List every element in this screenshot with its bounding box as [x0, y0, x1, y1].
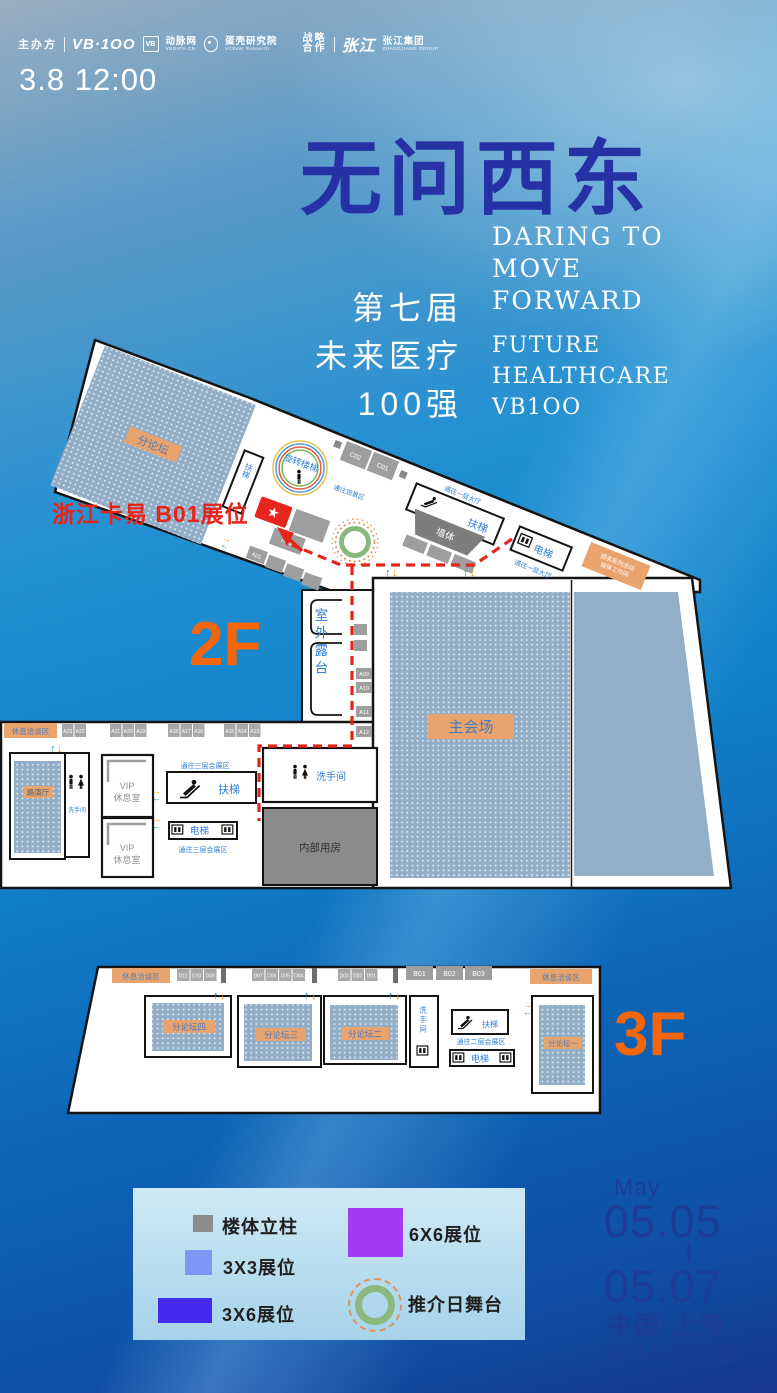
sponsor-bar: 主办方 VB·1OO VB 动脉网 VBDATA.CN 蛋壳研究院 VCBeat…	[18, 33, 438, 55]
legend-pillar-swatch	[193, 1215, 213, 1232]
booth-a13-label: A13	[250, 729, 259, 735]
floor3-elevator: 电梯	[450, 1050, 514, 1066]
up-down-arrows	[304, 990, 317, 1002]
booth-d05-label: D05	[281, 974, 290, 980]
floor3-restroom: 洗手间	[410, 996, 438, 1067]
pillar	[221, 968, 226, 983]
booth-a22-label: A22	[76, 729, 85, 735]
booth-a11-label: A11	[359, 710, 368, 716]
booth-a21-label: A21	[111, 729, 120, 735]
booth-d11-label: D11	[179, 974, 188, 980]
zhangjiang-sub: ZHANGJIANG GROUP	[383, 47, 439, 52]
rest-area-right-label: 休息洽谈区	[542, 972, 580, 982]
vcbeat-logo-icon: VB	[143, 36, 159, 52]
floor2-restroom-center: 洗手间	[263, 748, 377, 802]
forum-room-1: 分论坛一	[523, 996, 593, 1093]
subtitle-en-line3: VB1OO	[492, 392, 670, 423]
floor2-big-label: 2F	[189, 614, 261, 676]
floor3-plan: 休息洽谈区 休息洽谈区 D11 D10 D09 D07 D06 D05 D04 …	[68, 966, 600, 1113]
legend-stage-ring-icon	[355, 1285, 395, 1325]
main-title-cn: 无问西东	[300, 138, 720, 220]
legend-6x6-swatch	[348, 1208, 403, 1257]
floor2-restroom-left: 洗手间	[65, 753, 89, 857]
vip-lounge-1: VIP 休息室	[102, 755, 153, 817]
screenshot-timestamp: 3.8 12:00	[19, 62, 157, 98]
floor3-big-label: 3F	[614, 1004, 686, 1066]
booth-b03-label: B03	[472, 971, 485, 978]
pillar	[393, 968, 398, 983]
floor3-escalator: 扶梯 通往二层会展区	[452, 1010, 508, 1046]
legend-6x6-label: 6X6展位	[409, 1221, 482, 1247]
vcbeat-sub: VBDATA.CN	[166, 47, 198, 52]
pillar	[354, 624, 367, 635]
vip1-line2: 休息室	[113, 792, 140, 803]
booth-a17-label: A17	[182, 729, 191, 735]
up-down-arrows	[463, 567, 476, 579]
booth-a19-label: A19	[136, 729, 145, 735]
title-en-line2: MOVE	[492, 253, 664, 285]
swap-arrows	[523, 1000, 532, 1017]
rest-area-left-label: 休息洽谈区	[122, 971, 160, 981]
subtitle-cn-line3: 100强	[296, 380, 463, 428]
booth-d09-label: D09	[206, 974, 215, 980]
divider	[64, 37, 65, 52]
to-f3-label: 通往三层会展区	[181, 761, 230, 770]
title-en-line3: FORWARD	[492, 285, 664, 317]
up-down-arrows	[213, 990, 226, 1002]
partner-label-2: 合作	[303, 44, 327, 55]
subtitle-cn: 第七届 未来医疗 100强	[296, 284, 463, 428]
restroom-label: 洗手间	[68, 806, 86, 814]
floor2-center-elevator: 电梯 通往三层会展区	[169, 822, 237, 854]
booth-a15-label: A15	[225, 729, 234, 735]
vb100-logo: VB·1OO	[72, 36, 136, 53]
internal-room: 内部用房	[263, 808, 377, 885]
event-date-start: 05.05	[604, 1196, 722, 1248]
partner-label: 战略 合作	[303, 34, 327, 55]
legend-pillar-label: 楼体立柱	[222, 1213, 298, 1239]
subtitle-en-line2: HEALTHCARE	[492, 361, 670, 392]
forum1-label: 分论坛一	[548, 1038, 578, 1048]
restroom3-label: 洗手间	[418, 1005, 427, 1035]
booth-a18-label: A18	[169, 729, 178, 735]
subtitle-cn-line1: 第七届	[296, 284, 463, 332]
event-date-separator: |	[686, 1241, 691, 1263]
roadshow-seating	[14, 761, 61, 853]
booth-d01-label: D01	[367, 974, 376, 980]
vip2-line1: VIP	[120, 843, 135, 853]
eggshell-sub: VCBeat Research	[225, 47, 278, 52]
booth-d02-label: D02	[353, 974, 362, 980]
booth-a09-label: A09	[359, 672, 369, 678]
forum2-label: 分论坛二	[348, 1029, 383, 1039]
legend-3x3-swatch	[185, 1250, 212, 1275]
forum3-label: 分论坛三	[264, 1030, 298, 1040]
forum-room-4: 分论坛四	[145, 990, 231, 1057]
booth-d04-label: D04	[294, 974, 303, 980]
zhangjiang-group: 张江集团 ZHANGJIANG GROUP	[383, 37, 439, 52]
booth-d03-label: D03	[340, 974, 349, 980]
main-hall-label: 主会场	[448, 719, 493, 736]
swap-arrows	[152, 786, 161, 803]
pillar	[312, 968, 317, 983]
legend-3x6-label: 3X6展位	[222, 1301, 295, 1327]
booth-a20-label: A20	[124, 729, 133, 735]
center-escalator-label: 扶梯	[218, 782, 240, 796]
forum-room-2: 分论坛二	[324, 990, 406, 1064]
swap-arrows	[152, 814, 161, 831]
subtitle-cn-line2: 未来医疗	[296, 332, 463, 380]
booth-a14-label: A14	[238, 729, 247, 735]
legend-panel: 楼体立柱 3X3展位 3X6展位 6X6展位 推介日舞台	[133, 1188, 525, 1340]
poster-canvas: ↑ ↓ → ←	[0, 0, 777, 1393]
booth-a12-label: A12	[359, 730, 369, 736]
eggshell-logo: 蛋壳研究院 VCBeat Research	[225, 37, 278, 52]
forum-room-3: 分论坛三	[238, 990, 321, 1067]
pillar	[354, 640, 367, 651]
up-down-arrows	[388, 990, 401, 1002]
elevator3-label: 电梯	[471, 1053, 489, 1064]
divider	[334, 37, 335, 52]
restroom-center-label: 洗手间	[316, 770, 346, 783]
forum4-label: 分论坛四	[172, 1022, 206, 1032]
booth-a10-label: A10	[359, 686, 369, 692]
title-en-line1: DARING TO	[492, 221, 664, 253]
to-f3-label-2: 通往三层会展区	[179, 845, 228, 854]
internal-room-label: 内部用房	[299, 841, 341, 854]
booth-a23-label: A23	[63, 729, 72, 735]
roadshow-hall: 路演厅	[10, 753, 65, 859]
main-title-en: DARING TO MOVE FORWARD	[492, 221, 664, 317]
legend-3x3-label: 3X3展位	[223, 1254, 296, 1280]
vip-lounge-2: VIP 休息室	[102, 818, 153, 877]
up-down-arrows	[385, 567, 398, 579]
subtitle-en: FUTURE HEALTHCARE VB1OO	[492, 330, 670, 423]
organizer-label: 主办方	[18, 36, 57, 52]
terrace-label: 室外露台	[313, 607, 329, 678]
booth-d06-label: D06	[267, 974, 276, 980]
zhangjiang-logo: 张江	[342, 32, 376, 56]
rest-area-label: 休息洽谈区	[12, 726, 50, 736]
escalator3-label: 扶梯	[482, 1019, 498, 1029]
subtitle-en-line1: FUTURE	[492, 330, 670, 361]
booth-callout: 浙江卡易 B01展位	[52, 495, 249, 529]
booth-d10-label: D10	[192, 974, 201, 980]
to-f2-label: 通往二层会展区	[457, 1037, 506, 1046]
legend-stage-label: 推介日舞台	[408, 1291, 503, 1317]
event-venue: 张江科学会堂	[605, 1337, 737, 1366]
booth-b02-label: B02	[443, 971, 456, 978]
booth-b01-label: B01	[413, 971, 426, 978]
booth-a16-label: A16	[194, 729, 203, 735]
legend-3x6-swatch	[158, 1298, 212, 1323]
vip2-line2: 休息室	[113, 854, 140, 865]
roadshow-label: 路演厅	[27, 787, 50, 797]
eggshell-logo-icon	[204, 36, 218, 52]
booth-d07-label: D07	[254, 974, 263, 980]
vip1-line1: VIP	[120, 781, 135, 791]
center-elevator-label: 电梯	[190, 825, 210, 837]
vcbeat-logo: 动脉网 VBDATA.CN	[166, 37, 198, 52]
